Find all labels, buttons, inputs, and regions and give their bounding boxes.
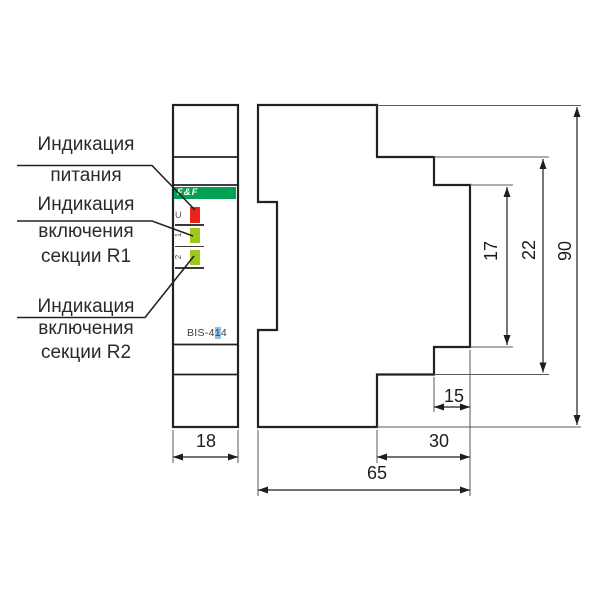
model-label: BIS-414 <box>187 327 227 339</box>
side-view-profile <box>258 105 470 427</box>
dim-value-90: 90 <box>554 231 576 271</box>
dim-value-30: 30 <box>419 431 459 452</box>
dim-value-18: 18 <box>186 431 226 452</box>
r1-led <box>190 228 200 243</box>
annotation-power-line2: питания <box>16 166 156 186</box>
brand-stripe: F&F <box>174 187 236 199</box>
dim-value-22: 22 <box>518 230 540 270</box>
power-led-label: U <box>175 210 182 220</box>
annotation-r2-line2: включения <box>16 319 156 339</box>
r2-led-underline <box>175 267 204 269</box>
dimension-drawing-bis414: F&F U 1 2 BIS-414 Индикация питания Инди… <box>0 0 600 600</box>
dim-value-65: 65 <box>357 463 397 484</box>
r2-led <box>190 250 200 265</box>
annotation-power-line1: Индикация <box>16 135 156 155</box>
annotation-r1-line1: Индикация <box>16 195 156 215</box>
power-led-underline <box>175 224 204 226</box>
r1-led-underline <box>175 246 204 248</box>
annotation-r2-line1: Индикация <box>16 297 156 317</box>
r2-led-label: 2 <box>173 251 185 263</box>
annotation-r1-line2: включения <box>16 222 156 242</box>
model-prefix: BIS-4 <box>187 327 215 339</box>
r1-led-label: 1 <box>173 229 185 241</box>
model-suffix: 4 <box>221 327 227 339</box>
power-led <box>190 207 200 223</box>
annotation-r2-line3: секции R2 <box>16 343 156 363</box>
brand-logo: F&F <box>174 187 236 199</box>
annotation-r1-line3: секции R1 <box>16 247 156 267</box>
dim-value-17: 17 <box>480 231 502 271</box>
front-view-outline <box>173 105 238 427</box>
dim-value-15: 15 <box>434 386 474 407</box>
